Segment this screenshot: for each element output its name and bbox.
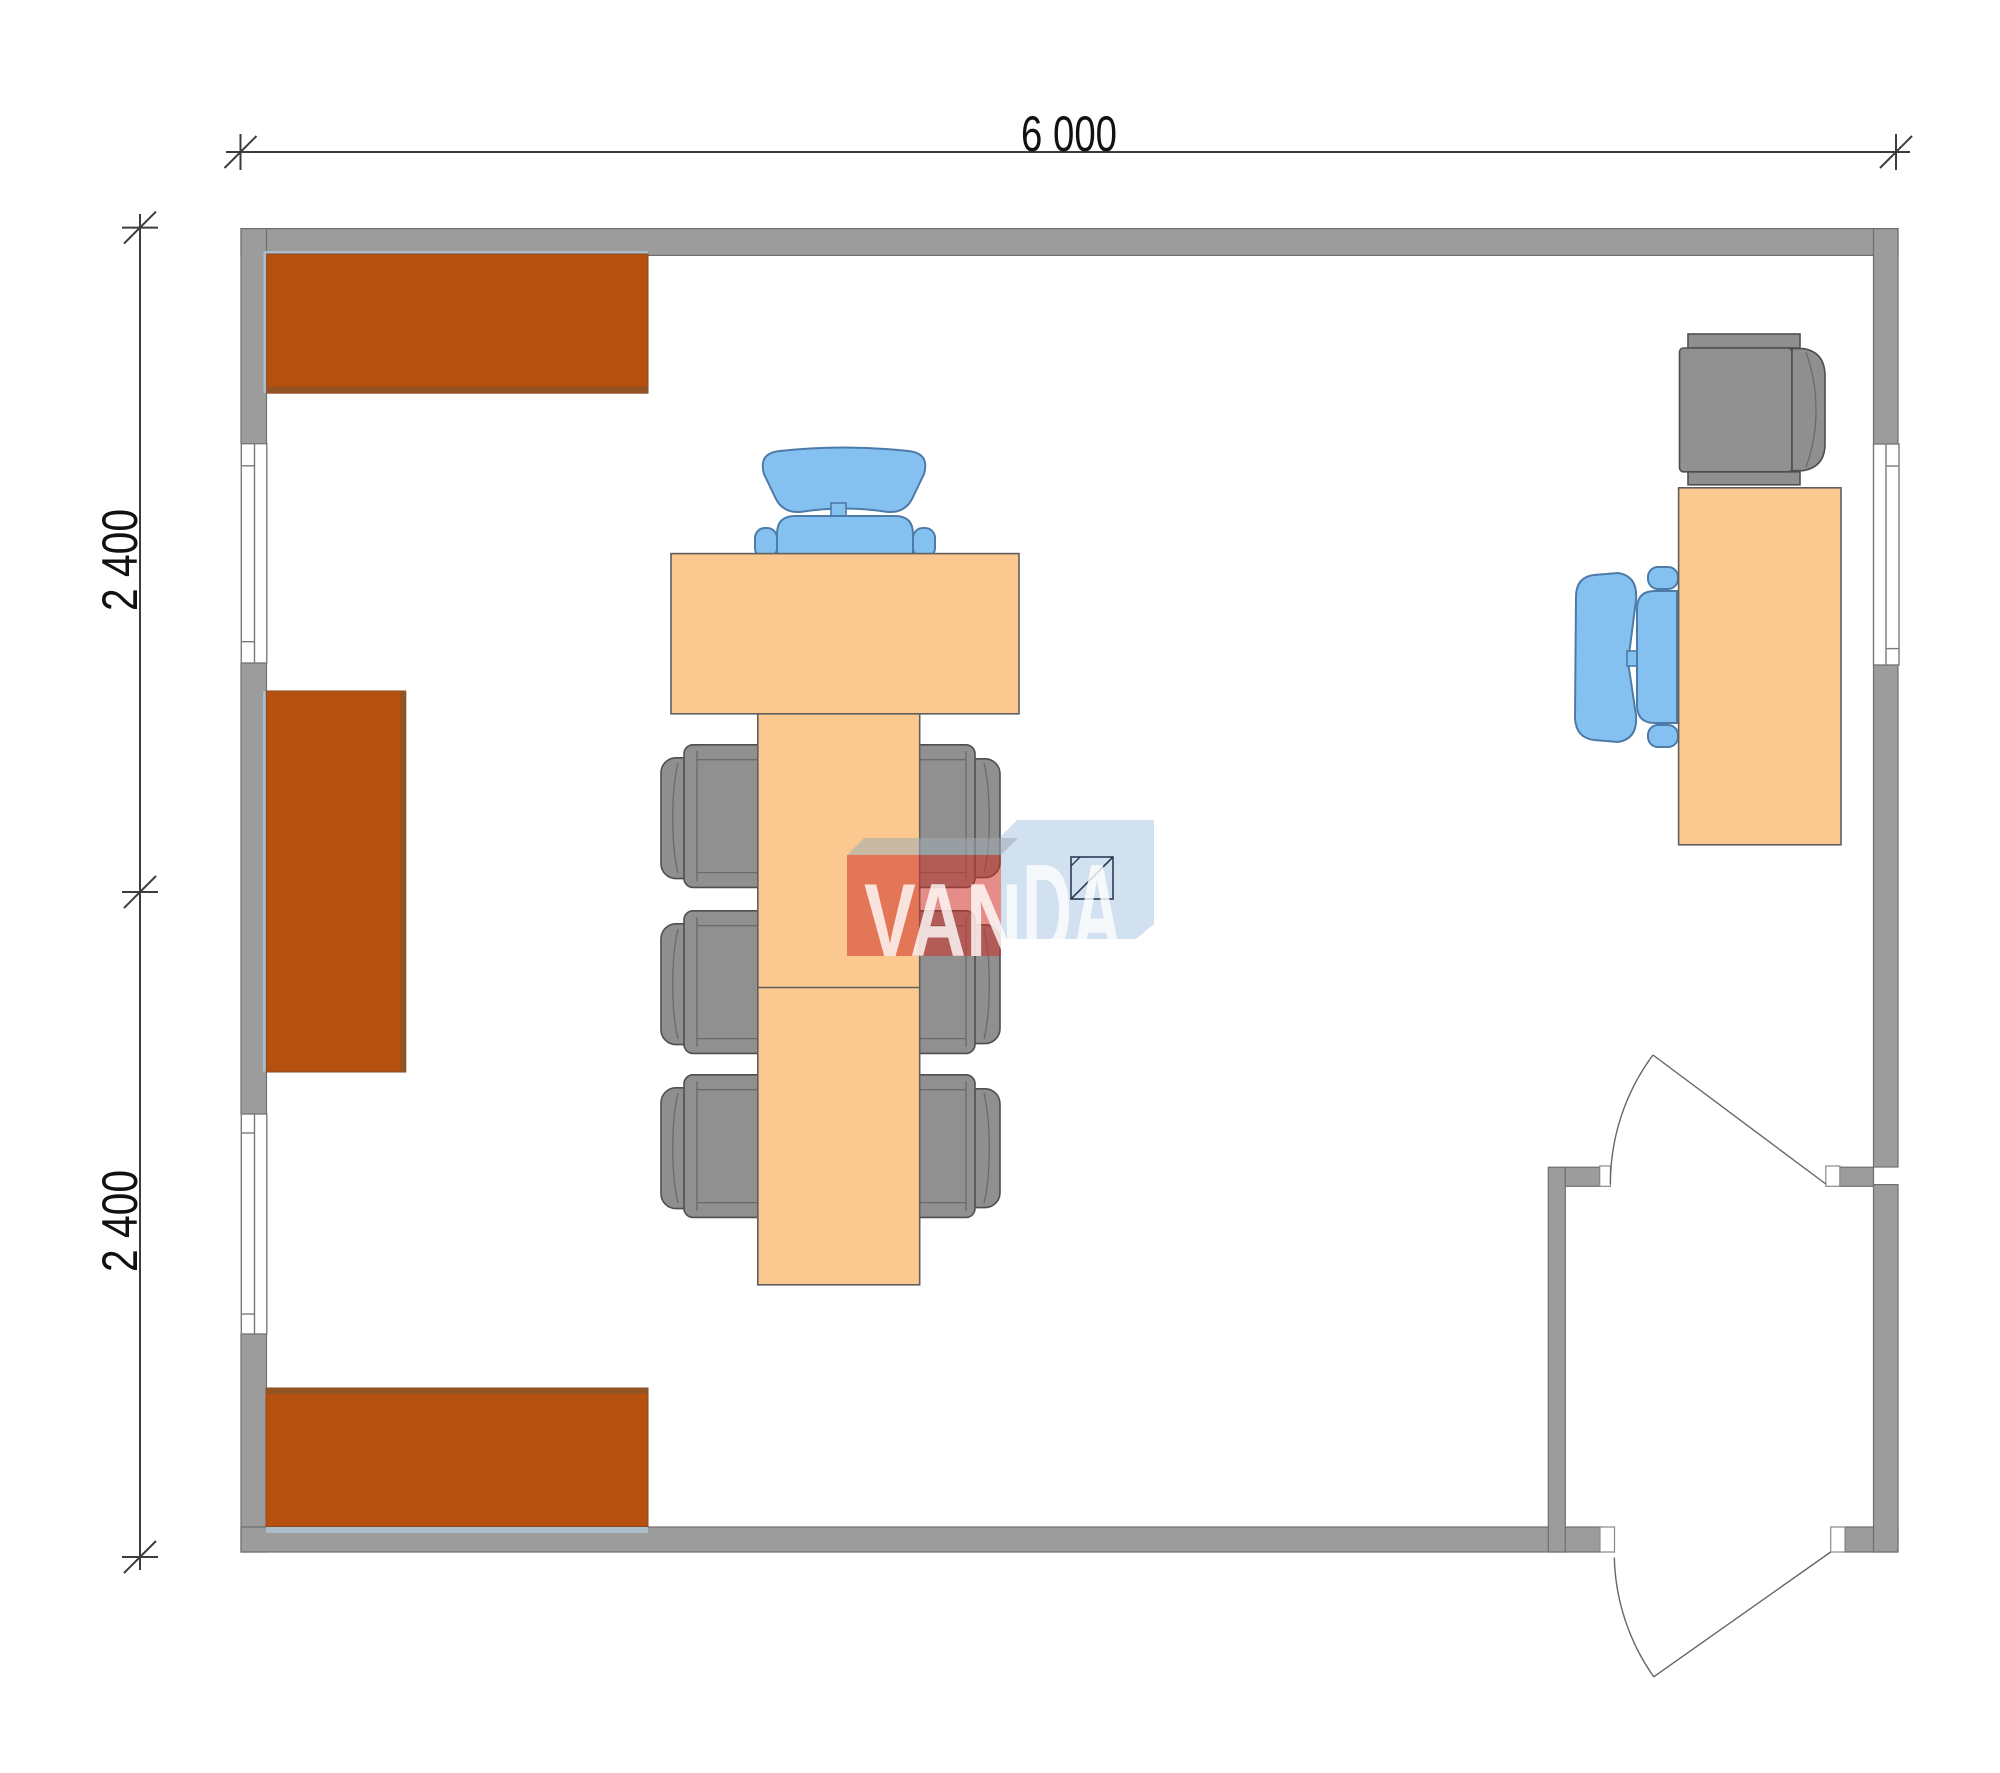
svg-text:2 400: 2 400 <box>92 509 148 611</box>
svg-text:6 000: 6 000 <box>1021 106 1117 162</box>
svg-text:DA: DA <box>1022 837 1122 984</box>
svg-text:VAN: VAN <box>864 863 1022 979</box>
svg-text:2 400: 2 400 <box>92 1170 148 1272</box>
